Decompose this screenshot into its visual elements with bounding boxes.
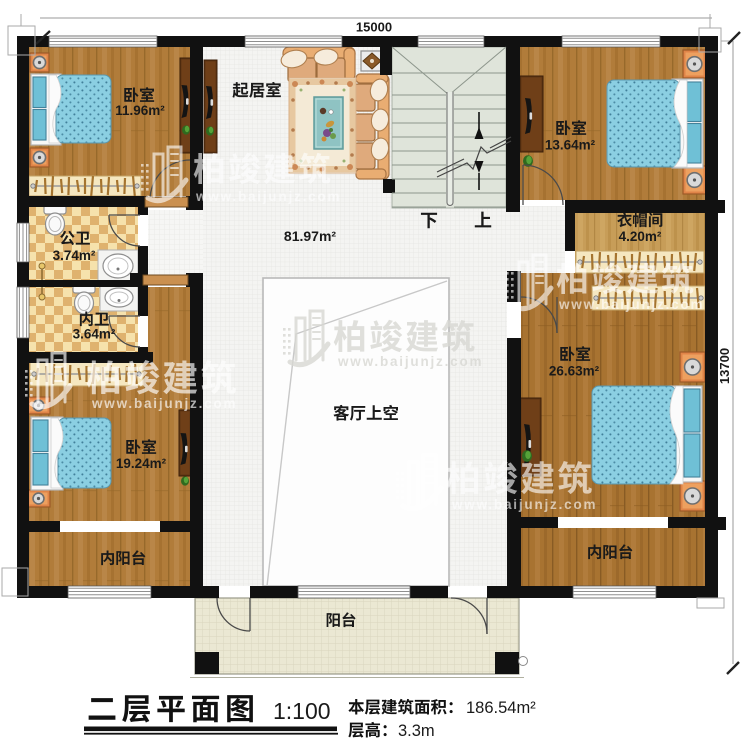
- svg-text:13700: 13700: [717, 348, 732, 384]
- svg-text:26.63m²: 26.63m²: [549, 364, 600, 379]
- svg-text:1:100: 1:100: [273, 698, 331, 724]
- svg-text:11.96m²: 11.96m²: [115, 103, 165, 118]
- svg-text:13.64m²: 13.64m²: [545, 138, 596, 153]
- svg-text:www.baijunjz.com: www.baijunjz.com: [195, 189, 341, 204]
- svg-text:3.3m: 3.3m: [398, 722, 435, 740]
- svg-text:81.97m²: 81.97m²: [284, 228, 336, 244]
- svg-text:186.54m²: 186.54m²: [466, 699, 536, 717]
- svg-text:www.baijunjz.com: www.baijunjz.com: [451, 497, 597, 512]
- svg-text:www.baijunjz.com: www.baijunjz.com: [337, 354, 483, 369]
- svg-text:4.20m²: 4.20m²: [619, 229, 662, 244]
- svg-text:19.24m²: 19.24m²: [116, 456, 167, 471]
- svg-text:3.74m²: 3.74m²: [53, 248, 96, 263]
- svg-text:3.64m²: 3.64m²: [73, 327, 116, 342]
- svg-text:www.baijunjz.com: www.baijunjz.com: [91, 396, 237, 411]
- svg-text:www.baijunjz.com: www.baijunjz.com: [558, 297, 704, 312]
- svg-text:15000: 15000: [356, 20, 392, 35]
